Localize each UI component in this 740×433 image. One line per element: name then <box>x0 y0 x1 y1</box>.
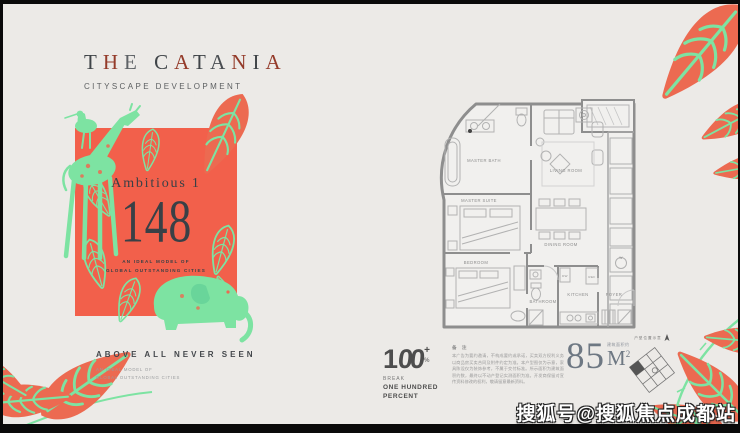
floor-plan: MASTER BATH LIVING ROOM MASTER SUITE BED… <box>432 98 644 334</box>
keyplan-block: 户型位置示意 <box>626 334 678 399</box>
keyplan-diagram <box>626 342 678 394</box>
balcony <box>582 100 634 132</box>
tagline-title: ABOVE ALL NEVER SEEN <box>96 350 256 359</box>
brand-subtitle: CITYSCAPE DEVELOPMENT <box>84 82 287 91</box>
tagline-block: ABOVE ALL NEVER SEEN AN IDEAL MODEL OF G… <box>96 350 256 381</box>
hundred-percent-logo: 1 00 + % BREAK ONE HUNDRED PERCENT <box>383 346 438 400</box>
frame-bar-left <box>0 0 3 433</box>
dishwasher-label: DW <box>562 274 568 278</box>
area-value: 85 <box>566 338 605 375</box>
room-label: DINING ROOM <box>544 242 577 247</box>
room-label: LIVING ROOM <box>550 168 582 173</box>
area-callout: 85 建筑面积约 M2 <box>566 338 630 375</box>
disclaimer-block: 备 注 本广告为要约邀请，不构成要约或承诺，买卖双方权利义务以商品房买卖合同及附… <box>452 345 564 386</box>
room-label: MASTER BATH <box>467 158 501 163</box>
north-arrow-icon <box>664 334 670 342</box>
note-label: 备 注 <box>452 345 564 351</box>
room-label: KITCHEN <box>567 292 588 297</box>
poster-number: 148 <box>120 192 191 252</box>
leaf-decoration <box>645 0 740 185</box>
slide: THE CATANIA CITYSCAPE DEVELOPMENT Ambiti… <box>0 0 740 433</box>
room-label: BATHROOM <box>529 299 556 304</box>
room-label: BEDROOM <box>464 260 489 265</box>
room-label: MASTER SUITE <box>461 198 497 203</box>
brand-block: THE CATANIA CITYSCAPE DEVELOPMENT <box>84 50 287 91</box>
poster-caption: AN IDEAL MODEL OF GLOBAL OUTSTANDING CIT… <box>106 258 206 275</box>
frame-bar-top <box>0 0 740 4</box>
room-label: FOYER <box>606 292 622 297</box>
fridge-label: REF <box>588 275 595 279</box>
brand-title: THE CATANIA <box>84 50 287 75</box>
area-unit: M <box>607 346 626 370</box>
disclaimer-text: 本广告为要约邀请，不构成要约或承诺，买卖双方权利义务以商品房买卖合同及附件约定为… <box>452 353 564 386</box>
tagline-sub: AN IDEAL MODEL OF GLOBAL OUTSTANDING CIT… <box>96 366 256 381</box>
sohu-watermark: 搜狐号@搜狐焦点成都站 <box>516 399 736 426</box>
washer-label: W <box>619 256 623 260</box>
poster-text-block: Ambitious 1 148 AN IDEAL MODEL OF GLOBAL… <box>75 128 237 316</box>
keyplan-label: 户型位置示意 <box>634 336 662 341</box>
floor-drain <box>468 129 472 133</box>
